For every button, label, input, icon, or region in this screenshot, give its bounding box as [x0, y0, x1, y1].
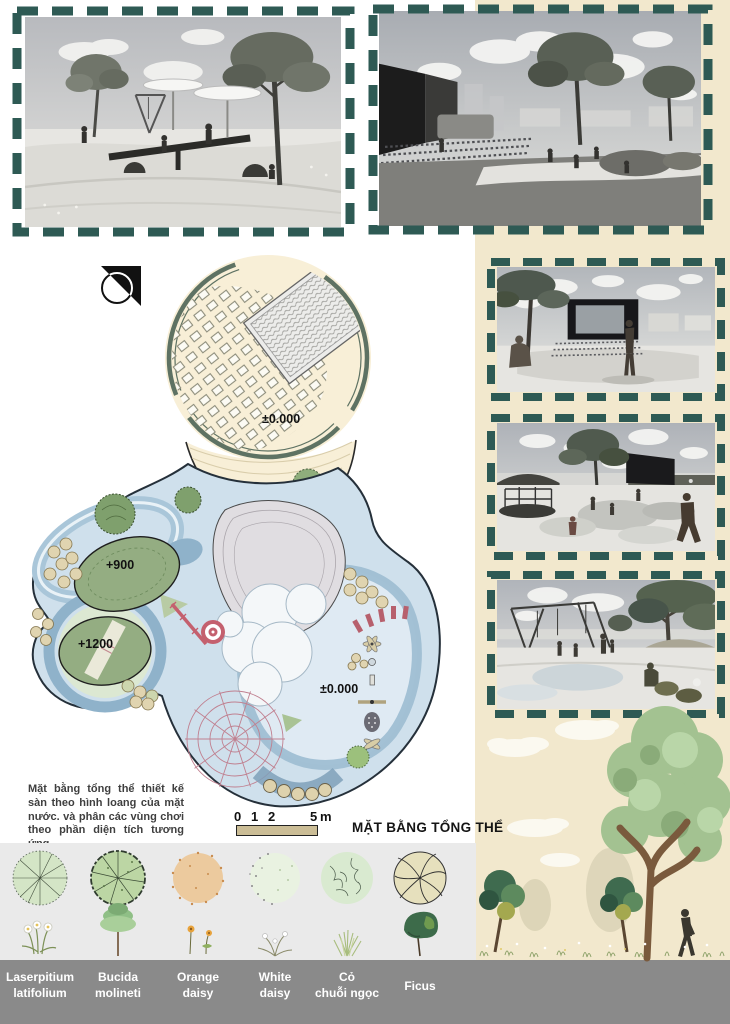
clouds — [487, 720, 619, 867]
legend-symbol-orange-daisy — [172, 852, 224, 954]
scale-tick-0: 0 — [234, 809, 241, 824]
rendering-frame-stage-view — [487, 258, 725, 401]
event-plaza-circle — [123, 252, 406, 496]
legend-label-ficus: Ficus — [372, 978, 468, 994]
site-plan: ±0.000 +900 +1200 ±0.000 — [20, 252, 460, 832]
level-label-1200: +1200 — [78, 637, 113, 651]
scale-tick-1: 1 — [251, 809, 258, 824]
rendering-frame-plaza — [368, 4, 713, 235]
rendering-frame-swings — [487, 571, 725, 718]
legend-symbol-ficus — [394, 852, 446, 956]
legend-symbol-white-daisy — [249, 853, 300, 956]
scale-tick-5: 5 — [310, 809, 317, 824]
scenery-illustration — [475, 700, 730, 962]
rendering-frame-playground — [12, 6, 355, 237]
legend-symbol-bucida — [91, 851, 145, 956]
grass-sketch — [334, 930, 361, 956]
site-plan-svg — [20, 252, 460, 832]
scale-tick-2: 2 — [268, 809, 275, 824]
scale-bar: 0 1 2 5 m — [234, 809, 344, 839]
level-label-event-plaza: ±0.000 — [262, 412, 300, 426]
legend-symbol-laserpitium — [13, 851, 67, 954]
grass-strip — [480, 951, 724, 957]
person-silhouette — [678, 909, 695, 957]
flower-dots — [486, 942, 709, 950]
bucida-sketch — [100, 903, 136, 956]
level-label-900: +900 — [106, 558, 134, 572]
laserpitium-sketch — [22, 921, 56, 954]
legend-symbols — [0, 846, 476, 960]
scale-bar-rule — [236, 825, 318, 836]
rendering-frame-play-circles — [487, 414, 725, 560]
white-daisy-sketch — [258, 932, 292, 957]
level-label-play-area: ±0.000 — [320, 682, 358, 696]
small-tree-left — [479, 870, 525, 952]
scale-unit: m — [320, 809, 332, 824]
presentation-board: ±0.000 +900 +1200 ±0.000 Mặt bằng tổng t… — [0, 0, 730, 1024]
legend-symbol-co-chuoi-ngoc — [321, 852, 373, 956]
orange-daisy-sketch — [188, 926, 213, 955]
ficus-sketch — [404, 912, 438, 956]
plan-description-note: Mặt bằng tổng thể thiết kế sàn theo hình… — [28, 783, 184, 852]
